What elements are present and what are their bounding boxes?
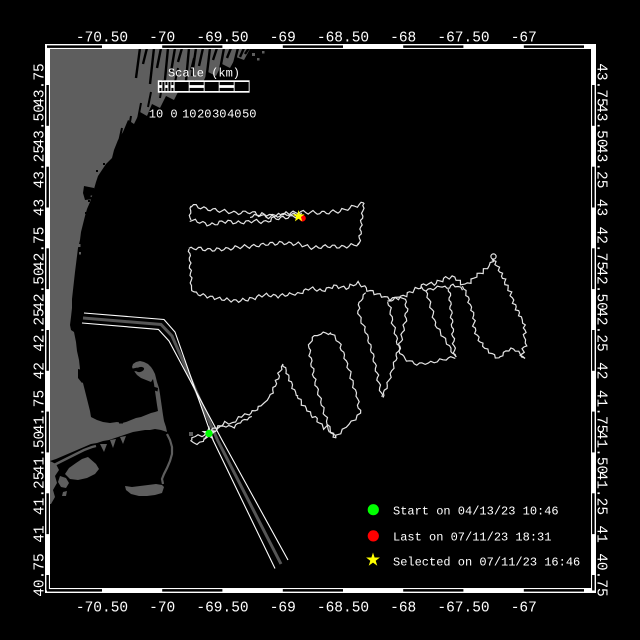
svg-text:-69.50: -69.50 — [196, 601, 248, 617]
svg-text:10: 10 — [149, 108, 163, 122]
svg-text:41.25: 41.25 — [33, 472, 49, 516]
svg-text:-68.50: -68.50 — [317, 31, 369, 47]
svg-text:41.75: 41.75 — [33, 390, 49, 434]
svg-text:0: 0 — [170, 108, 177, 122]
svg-text:20: 20 — [197, 108, 211, 122]
svg-text:Selected on 07/11/23 16:46: Selected on 07/11/23 16:46 — [393, 555, 580, 569]
svg-text:42.75: 42.75 — [593, 227, 609, 271]
svg-text:42.25: 42.25 — [33, 308, 49, 352]
svg-text:42.25: 42.25 — [593, 308, 609, 352]
svg-text:40.75: 40.75 — [33, 553, 49, 597]
svg-text:Scale (km): Scale (km) — [168, 67, 240, 81]
svg-text:-68: -68 — [390, 601, 416, 617]
svg-text:-68.50: -68.50 — [317, 601, 369, 617]
svg-text:41.50: 41.50 — [33, 431, 49, 475]
svg-text:-67.50: -67.50 — [437, 31, 489, 47]
svg-text:40: 40 — [227, 108, 241, 122]
svg-text:42: 42 — [33, 362, 49, 379]
svg-text:-70: -70 — [149, 601, 175, 617]
svg-text:-68: -68 — [390, 31, 416, 47]
svg-text:43.50: 43.50 — [33, 104, 49, 148]
svg-text:42.75: 42.75 — [33, 227, 49, 271]
svg-text:-70.50: -70.50 — [76, 601, 128, 617]
svg-text:50: 50 — [242, 108, 256, 122]
svg-text:Start on 04/13/23 10:46: Start on 04/13/23 10:46 — [393, 504, 559, 518]
svg-text:Last on 07/11/23 18:31: Last on 07/11/23 18:31 — [393, 531, 551, 545]
svg-text:43.50: 43.50 — [593, 104, 609, 148]
svg-text:43: 43 — [593, 199, 609, 216]
svg-text:-69: -69 — [270, 31, 296, 47]
svg-text:-70: -70 — [149, 31, 175, 47]
svg-text:43.75: 43.75 — [593, 63, 609, 107]
svg-text:41.75: 41.75 — [593, 390, 609, 434]
svg-text:30: 30 — [212, 108, 226, 122]
svg-text:-67.50: -67.50 — [437, 601, 489, 617]
svg-text:42: 42 — [593, 362, 609, 379]
svg-text:40.75: 40.75 — [593, 553, 609, 597]
svg-text:-67: -67 — [511, 31, 537, 47]
svg-text:-69: -69 — [270, 601, 296, 617]
svg-text:43.25: 43.25 — [593, 145, 609, 189]
svg-text:41: 41 — [33, 525, 49, 542]
svg-text:42.50: 42.50 — [593, 267, 609, 311]
svg-text:43.25: 43.25 — [33, 145, 49, 189]
svg-text:41.25: 41.25 — [593, 472, 609, 516]
svg-text:-70.50: -70.50 — [76, 31, 128, 47]
svg-text:43.75: 43.75 — [33, 63, 49, 107]
svg-text:10: 10 — [182, 108, 196, 122]
svg-text:-67: -67 — [511, 601, 537, 617]
svg-text:41.50: 41.50 — [593, 431, 609, 475]
svg-text:-69.50: -69.50 — [196, 31, 248, 47]
svg-text:43: 43 — [33, 199, 49, 216]
svg-text:42.50: 42.50 — [33, 267, 49, 311]
svg-text:41: 41 — [593, 525, 609, 542]
